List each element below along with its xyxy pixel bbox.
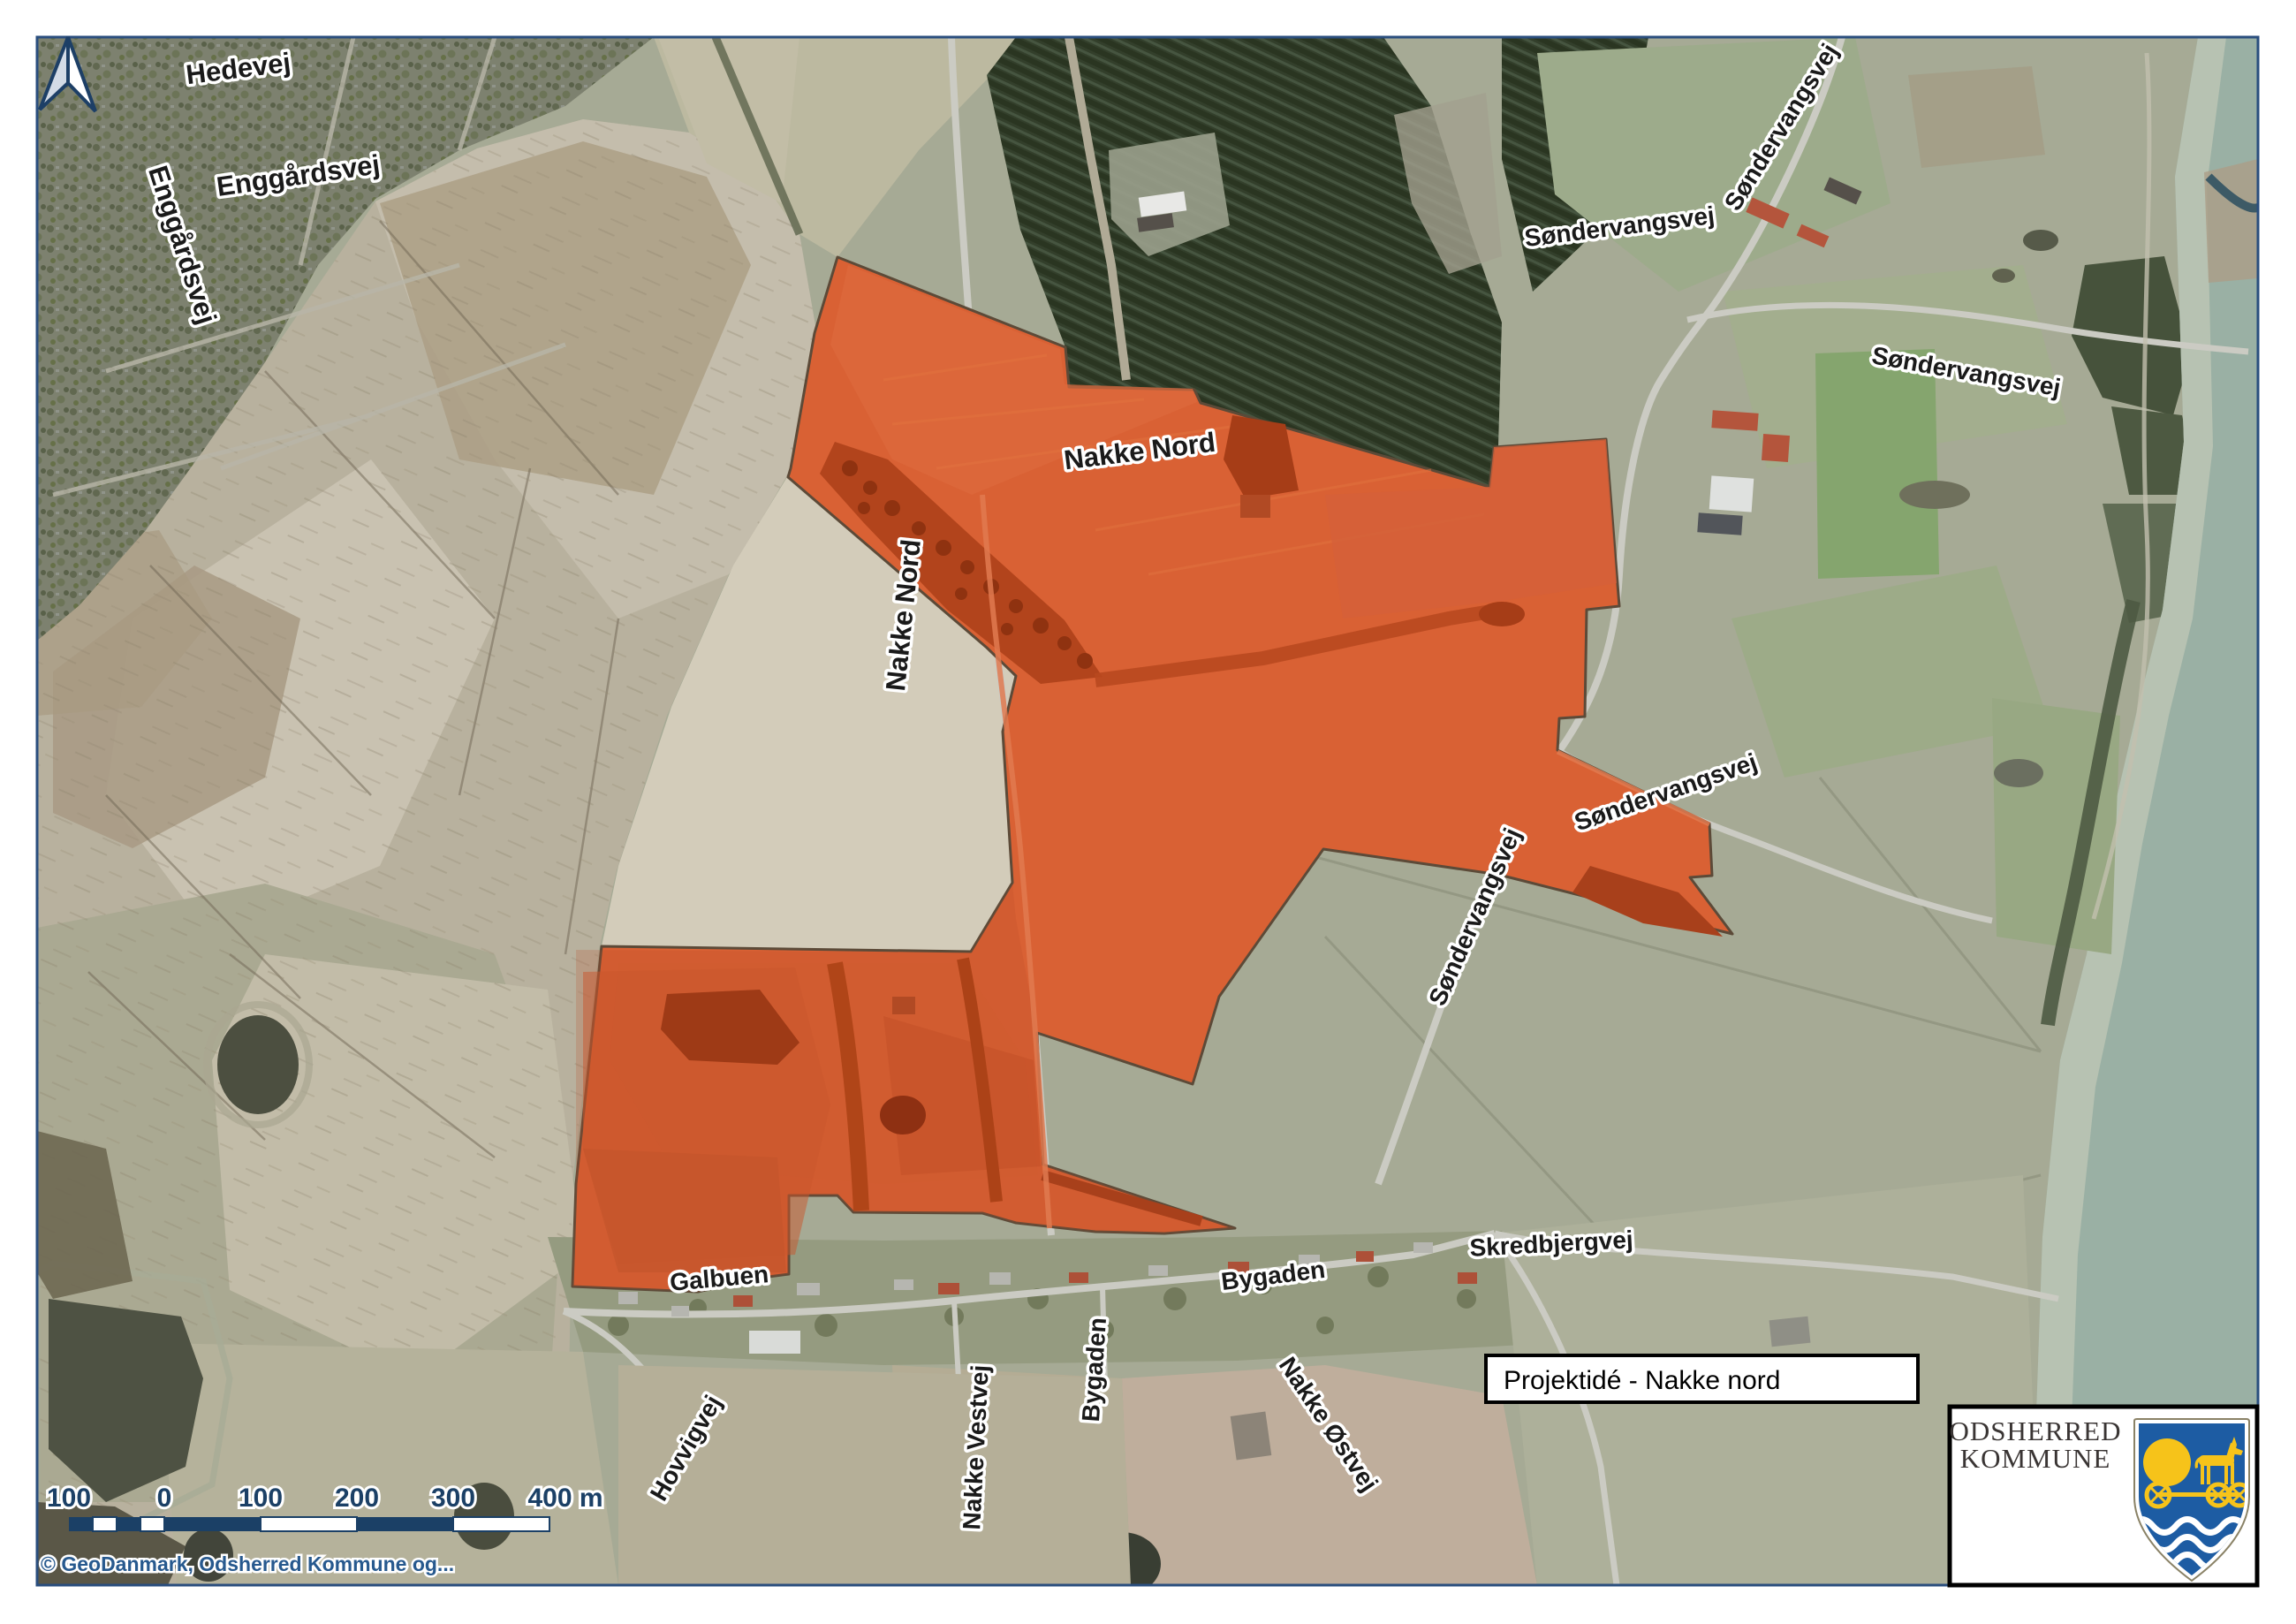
svg-text:400 m: 400 m — [527, 1484, 602, 1513]
svg-text:200: 200 — [335, 1484, 379, 1513]
svg-text:ODSHERRED: ODSHERRED — [1949, 1415, 2121, 1446]
svg-text:© GeoDanmark, Odsherred Kommun: © GeoDanmark, Odsherred Kommune og... — [41, 1552, 454, 1575]
svg-text:300: 300 — [431, 1484, 475, 1513]
svg-text:0: 0 — [157, 1484, 172, 1513]
svg-text:KOMMUNE: KOMMUNE — [1960, 1443, 2111, 1474]
svg-text:100: 100 — [239, 1484, 283, 1513]
svg-text:100: 100 — [47, 1484, 91, 1513]
svg-text:Projektidé - Nakke nord: Projektidé - Nakke nord — [1504, 1366, 1780, 1395]
